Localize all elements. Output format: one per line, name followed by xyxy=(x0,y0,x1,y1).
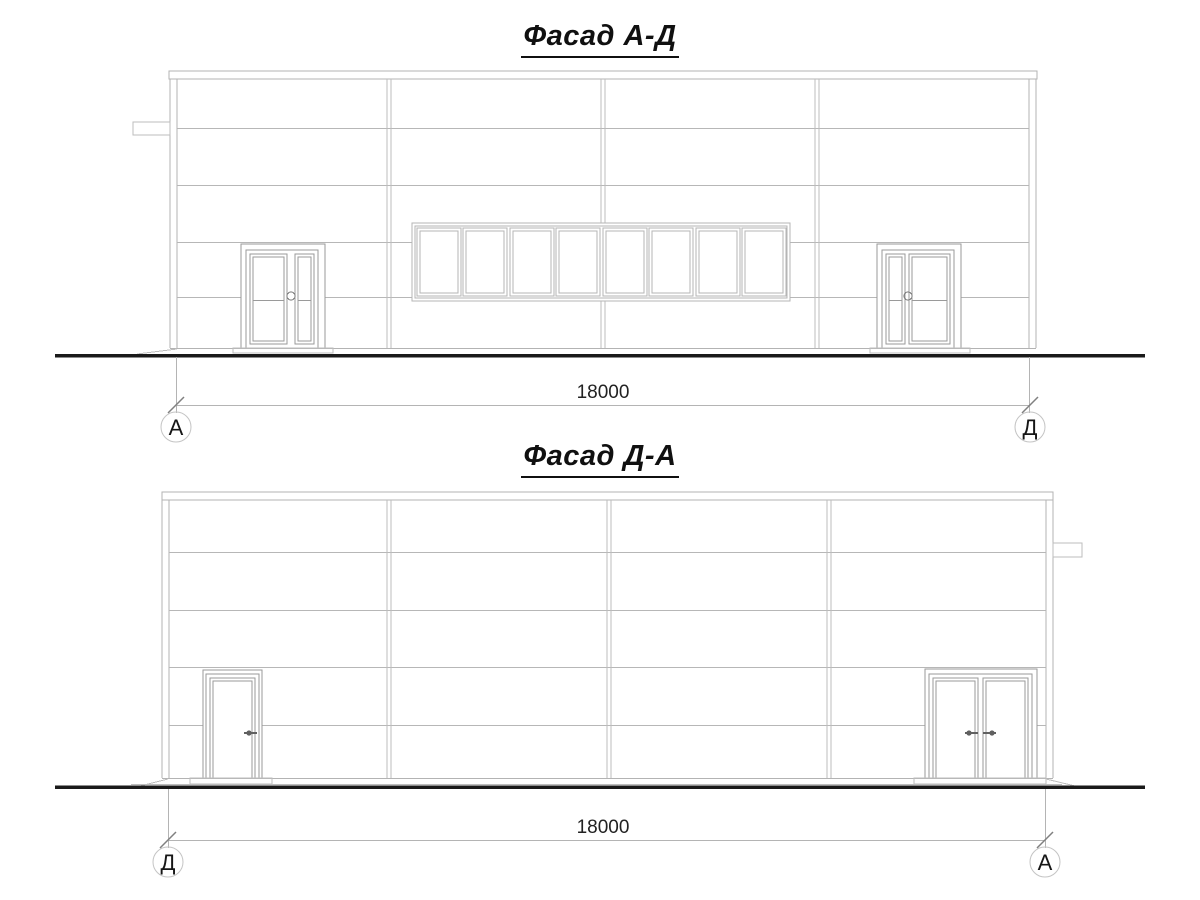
parapet-cap xyxy=(162,492,1053,500)
axis-label-right: Д xyxy=(1023,415,1038,440)
facade-da-column-joints xyxy=(387,500,831,778)
dimension-value: 18000 xyxy=(577,817,630,838)
single-door-left xyxy=(203,670,262,778)
grade-slope-left xyxy=(137,349,177,354)
axis-markers xyxy=(153,847,1060,877)
facade-ad-column-joints xyxy=(387,79,819,348)
axis-label-left: А xyxy=(169,415,184,440)
facade-da-base xyxy=(131,778,1075,786)
entrance-door-left xyxy=(241,244,325,348)
facade-da-dimension: 18000 Д А xyxy=(153,789,1060,877)
elevation-sheet: Фасад А-Д Фасад Д-А xyxy=(0,0,1200,900)
wall-ledge-left xyxy=(133,122,170,135)
axis-markers xyxy=(161,412,1045,442)
wall-ledge-right xyxy=(1053,543,1082,557)
elevation-drawing: 18000 А Д xyxy=(0,0,1200,900)
axis-label-right: А xyxy=(1038,850,1053,875)
ribbon-window-band xyxy=(412,223,790,301)
double-door-right xyxy=(925,669,1037,778)
parapet-cap xyxy=(169,71,1037,79)
facade-ad: 18000 А Д xyxy=(55,71,1145,442)
facade-ad-dimension: 18000 А Д xyxy=(161,357,1045,442)
dimension-value: 18000 xyxy=(577,382,630,403)
axis-label-left: Д xyxy=(161,850,176,875)
entrance-door-right xyxy=(877,244,961,348)
facade-da: 18000 Д А xyxy=(55,492,1145,877)
